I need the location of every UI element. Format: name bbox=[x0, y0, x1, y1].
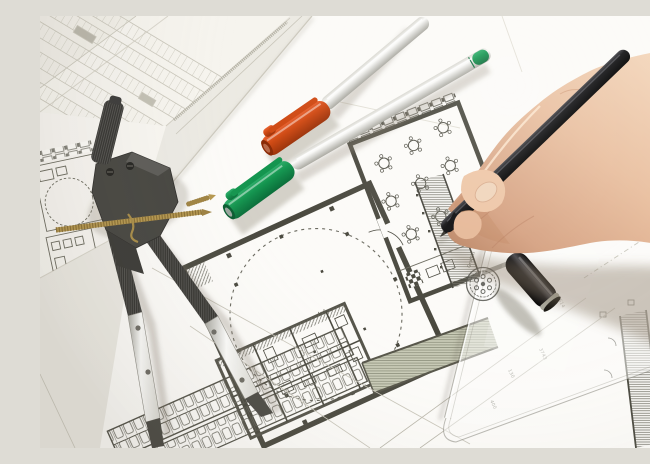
photo-architect-drawing: 4x0 bbox=[40, 16, 650, 448]
photo-canvas: 4x0 bbox=[40, 16, 650, 448]
lighting-overlay bbox=[40, 16, 650, 448]
